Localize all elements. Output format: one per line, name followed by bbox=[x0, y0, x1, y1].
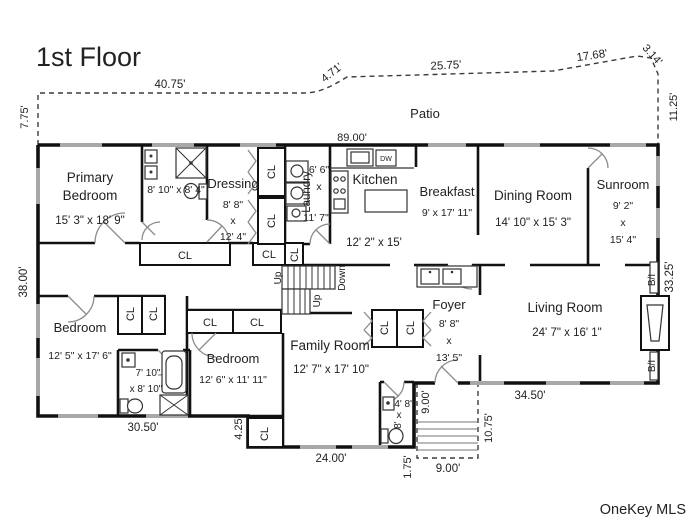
kitchen-dims: 12' 2" x 15' bbox=[346, 237, 402, 249]
family-room-dims: 12' 7" x 17' 10" bbox=[293, 364, 369, 376]
dim-bottom-mid: 24.00' bbox=[316, 453, 347, 465]
laundry-sink-basin bbox=[292, 209, 300, 217]
watermark: OneKey MLS bbox=[600, 502, 686, 518]
living-room-label: Living Room bbox=[527, 300, 602, 315]
laundry-dims-1: 6' 6" bbox=[309, 164, 330, 176]
dining-room-dims: 14' 10" x 15' 3" bbox=[495, 217, 571, 229]
dim-entry-offset: 1.75' bbox=[402, 455, 414, 479]
closet-label: CL bbox=[203, 317, 217, 329]
sunroom-label: Sunroom bbox=[597, 177, 650, 192]
toilet-tank bbox=[120, 399, 128, 413]
bench-knob-icon bbox=[451, 271, 454, 274]
laundry-label: Laundry bbox=[301, 171, 313, 213]
kitchen-sink-basin bbox=[351, 152, 369, 163]
primary-bedroom-label-2: Bedroom bbox=[63, 188, 118, 203]
dim-patio-top-3: 25.75' bbox=[430, 59, 462, 73]
living-room-dims: 24' 7" x 16' 1" bbox=[532, 327, 601, 339]
closet-label: CL bbox=[266, 165, 278, 179]
built-in-label: B/I bbox=[647, 274, 658, 286]
foyer-label: Foyer bbox=[432, 297, 466, 312]
dim-bottom-left: 30.50' bbox=[128, 422, 159, 434]
dim-patio-left: 7.75' bbox=[19, 105, 31, 129]
door-laundry bbox=[310, 224, 330, 244]
hall-bath-dims-2: x 8' 10" bbox=[130, 384, 163, 395]
powder-room-dims-x: x bbox=[397, 410, 402, 421]
bedroom-mid-dims: 12' 6" x 11' 11" bbox=[199, 374, 267, 386]
dim-patio-top-2: 4.71' bbox=[319, 61, 345, 85]
dim-patio-right: 11.25' bbox=[668, 93, 680, 122]
floor-plan-image: 1st Floor OneKey MLS 40.75' 4.71' 25.75'… bbox=[0, 0, 693, 520]
hall-bath-fixtures bbox=[120, 351, 188, 415]
stairs-up-run bbox=[282, 289, 310, 314]
porch-steps bbox=[417, 422, 478, 450]
dressing-dims-1: 8' 8" bbox=[223, 199, 244, 211]
closet-label: CL bbox=[250, 317, 264, 329]
foyer-bench bbox=[417, 266, 477, 287]
closet-label: CL bbox=[259, 427, 271, 441]
burner-icon bbox=[334, 177, 338, 181]
closet-label: CL bbox=[148, 307, 160, 321]
laundry-dims-2: 11' 7" bbox=[303, 212, 329, 224]
dim-house-left: 38.00' bbox=[18, 267, 30, 298]
burner-icon bbox=[334, 189, 338, 193]
kitchen-island bbox=[365, 190, 407, 212]
sunroom-dims-x: x bbox=[620, 217, 626, 229]
sunroom-dims-2: 15' 4" bbox=[610, 234, 636, 246]
burner-icon bbox=[341, 189, 345, 193]
primary-bedroom-dims: 15' 3" x 18' 9" bbox=[55, 215, 124, 227]
closet-label: CL bbox=[266, 214, 278, 228]
closet-label: CL bbox=[125, 307, 137, 321]
bedroom-mid-label: Bedroom bbox=[207, 351, 260, 366]
stairs bbox=[282, 266, 335, 314]
foyer-dims-1: 8' 8" bbox=[439, 318, 460, 330]
stairs-up-label: Up bbox=[273, 271, 284, 284]
bedroom-left-dims: 12' 5" x 17' 6" bbox=[48, 350, 112, 362]
stairs-down-run bbox=[282, 266, 335, 289]
dim-bottom-right: 34.50' bbox=[515, 390, 546, 402]
dim-porch-width: 9.00' bbox=[436, 463, 461, 475]
dressing-label: Dressing bbox=[207, 176, 258, 191]
closet-label: CL bbox=[405, 321, 417, 335]
toilet-bowl bbox=[128, 399, 143, 413]
dim-patio-top-5: 3.14' bbox=[640, 42, 665, 68]
closet-label: CL bbox=[289, 248, 301, 262]
page-title: 1st Floor bbox=[36, 42, 141, 72]
primary-bedroom-label-1: Primary bbox=[67, 170, 114, 185]
powder-room-dims-2: 8' bbox=[393, 421, 404, 429]
burner-icon bbox=[341, 177, 345, 181]
hall-bath-dims-1: 7' 10" bbox=[136, 368, 161, 379]
toilet-tank bbox=[381, 429, 388, 443]
kitchen-label: Kitchen bbox=[352, 172, 397, 187]
breakfast-label: Breakfast bbox=[420, 184, 475, 199]
bathtub-basin bbox=[166, 356, 182, 389]
shower-drain-icon bbox=[189, 161, 193, 165]
foyer-dims-x: x bbox=[446, 335, 452, 347]
sunroom-dims-1: 9' 2" bbox=[613, 200, 634, 212]
vanity-sink-dot bbox=[150, 155, 153, 158]
primary-bath-dims: 8' 10" x 8' 4" bbox=[147, 184, 205, 196]
patio-label: Patio bbox=[410, 106, 440, 121]
dim-house-top: 89.00' bbox=[337, 132, 367, 144]
dim-house-right: 33.25' bbox=[664, 262, 676, 293]
bench-knob-icon bbox=[429, 271, 432, 274]
breakfast-dims: 9' x 17' 11" bbox=[422, 207, 472, 219]
vanity-sink-dot bbox=[150, 171, 153, 174]
powder-sink-dot bbox=[386, 401, 390, 405]
door-sunroom bbox=[588, 148, 608, 168]
stairs-down-label: Down bbox=[337, 265, 348, 291]
dining-room-label: Dining Room bbox=[494, 188, 572, 203]
bath-sink-dot bbox=[126, 358, 130, 362]
floor-plan-svg: 1st Floor OneKey MLS 40.75' 4.71' 25.75'… bbox=[0, 0, 693, 520]
stairs-up-label: Up bbox=[312, 294, 323, 307]
foyer-dims-2: 13' 5" bbox=[436, 352, 462, 364]
powder-room-dims-1: 4' 8" bbox=[394, 399, 414, 410]
door-bedroom-left bbox=[68, 296, 94, 322]
dressing-dims-x: x bbox=[230, 215, 236, 227]
dim-bottom-step: 4.25' bbox=[233, 416, 245, 440]
built-in-label: B/I bbox=[647, 360, 658, 372]
closet-label: CL bbox=[379, 321, 391, 335]
closet-label: CL bbox=[262, 249, 276, 261]
dim-porch-side: 9.00' bbox=[420, 390, 432, 414]
family-room-label: Family Room bbox=[290, 338, 370, 353]
dim-patio-top-1: 40.75' bbox=[155, 79, 186, 91]
fireplace bbox=[641, 296, 669, 350]
dressing-dims-2: 12' 4" bbox=[220, 231, 246, 243]
laundry-dims-x: x bbox=[316, 181, 322, 193]
dishwasher-label: DW bbox=[380, 156, 392, 163]
oven bbox=[334, 199, 345, 209]
dim-porch-height: 10.75' bbox=[483, 413, 495, 443]
door-primary-bath bbox=[142, 222, 160, 240]
bedroom-left-label: Bedroom bbox=[54, 320, 107, 335]
closet-label: CL bbox=[178, 250, 192, 262]
bifold-dressing-closets bbox=[248, 150, 256, 244]
toilet-bowl bbox=[389, 429, 403, 444]
